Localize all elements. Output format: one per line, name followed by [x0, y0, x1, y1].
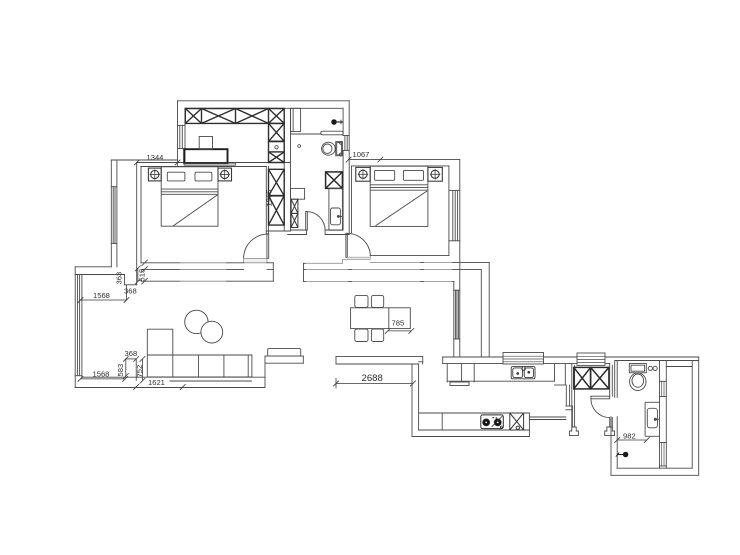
svg-text:515: 515 — [138, 269, 147, 282]
svg-text:363: 363 — [114, 272, 123, 285]
svg-text:1568: 1568 — [93, 291, 110, 300]
svg-text:982: 982 — [623, 432, 636, 441]
svg-text:1344: 1344 — [147, 153, 164, 162]
svg-text:1568: 1568 — [93, 370, 110, 379]
svg-text:1067: 1067 — [353, 150, 370, 159]
svg-text:1621: 1621 — [148, 378, 165, 387]
svg-text:368: 368 — [125, 349, 138, 358]
svg-text:583: 583 — [116, 364, 125, 377]
svg-text:368: 368 — [124, 286, 137, 295]
svg-text:2688: 2688 — [362, 373, 383, 384]
svg-text:752: 752 — [135, 365, 144, 378]
svg-text:785: 785 — [392, 319, 405, 328]
svg-text:1965: 1965 — [265, 190, 274, 207]
